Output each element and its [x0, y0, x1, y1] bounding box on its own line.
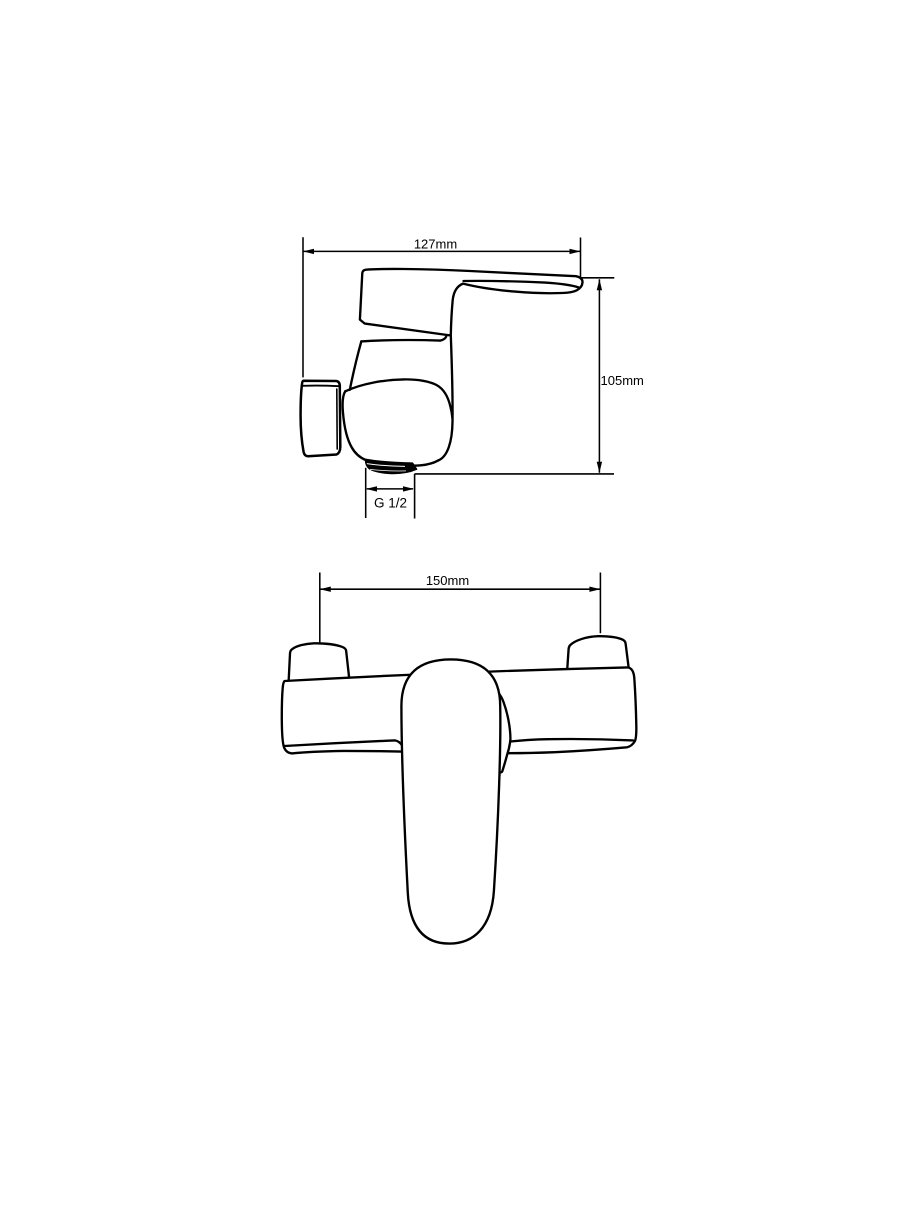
svg-text:105mm: 105mm [601, 373, 644, 388]
svg-text:150mm: 150mm [426, 573, 469, 588]
svg-text:G 1/2: G 1/2 [374, 496, 407, 511]
svg-text:127mm: 127mm [414, 237, 457, 252]
